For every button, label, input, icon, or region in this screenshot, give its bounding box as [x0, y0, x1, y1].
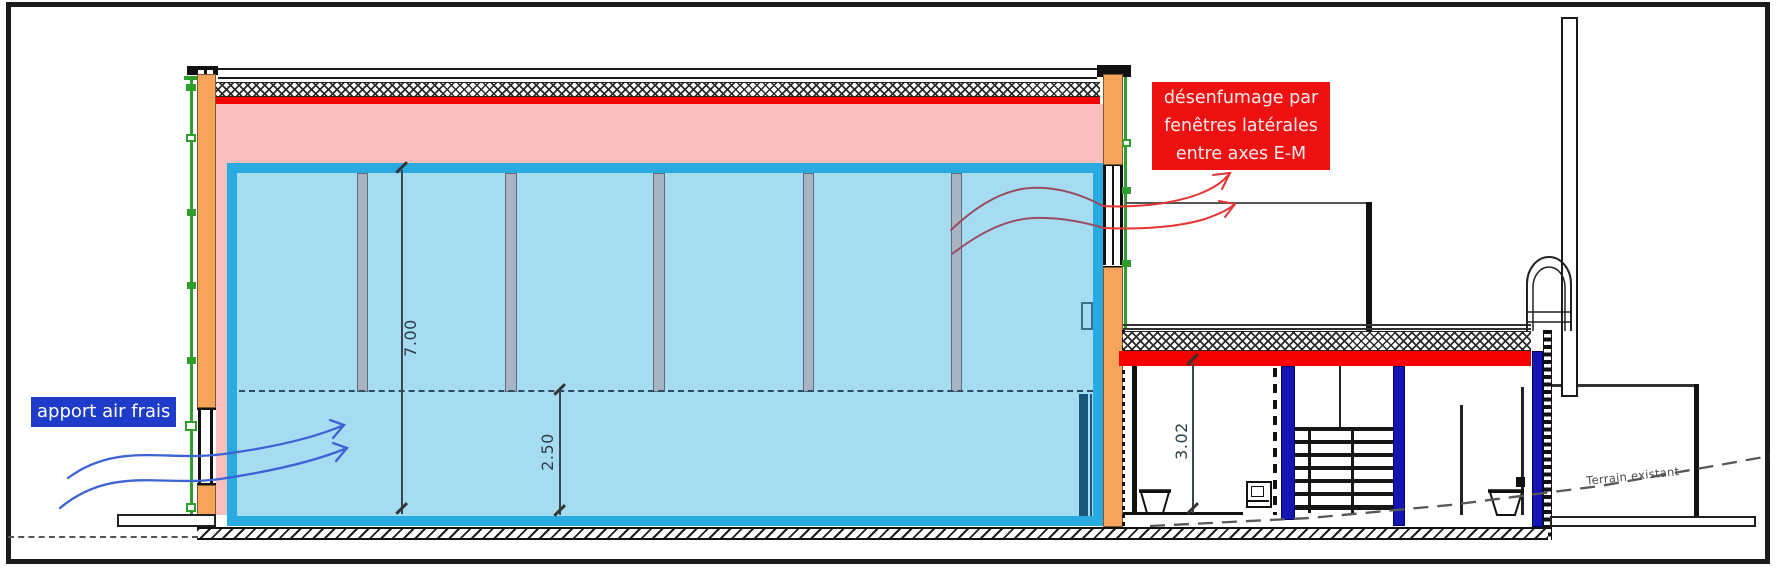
ladder-safety-cage	[1527, 257, 1571, 331]
fresh-air-label: apport air frais	[31, 397, 176, 427]
fresh-air-arrow	[68, 425, 344, 478]
wc-pan	[1141, 492, 1169, 513]
fresh-air-arrows	[60, 420, 347, 508]
smoke-arrow-inside	[951, 188, 1103, 230]
smoke-extraction-label: désenfumage par fenêtres latérales entre…	[1152, 82, 1330, 170]
fresh-air-arrow	[60, 448, 347, 508]
smoke-label-line: fenêtres latérales	[1152, 112, 1330, 140]
smoke-arrow-outside	[1103, 173, 1230, 206]
smoke-label-line: entre axes E-M	[1152, 140, 1330, 168]
dimension-value-3m: 3.02	[1171, 396, 1193, 486]
dimension-value-7m: 7.00	[400, 293, 422, 383]
smoke-arrow-inside	[952, 218, 1104, 254]
smoke-label-line: désenfumage par	[1152, 84, 1330, 112]
annotation-overlay	[0, 0, 1776, 569]
smoke-arrows	[951, 173, 1235, 254]
smoke-arrow-outside	[1104, 204, 1235, 229]
dimension-value-2m5: 2.50	[537, 407, 559, 497]
section-drawing: 7.00 2.50 3.02 apport air frais désenfum…	[0, 0, 1776, 569]
